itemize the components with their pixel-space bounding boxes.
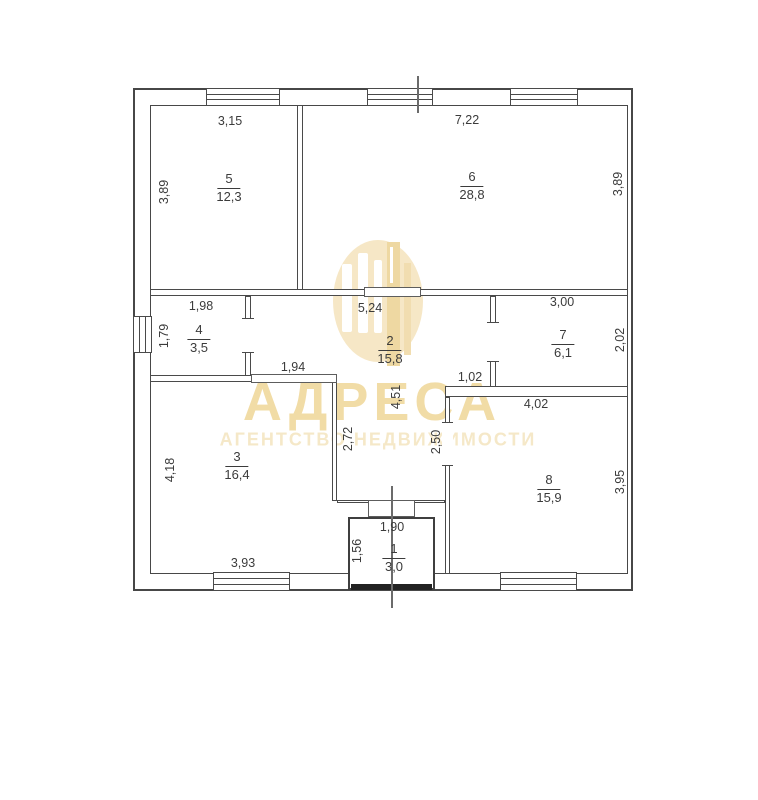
room-number: 3 xyxy=(225,450,248,467)
room-label-3: 3 16,4 xyxy=(224,450,249,483)
room-label-5: 5 12,3 xyxy=(216,172,241,205)
door-opening-room8 xyxy=(442,422,453,466)
room-label-6: 6 28,8 xyxy=(459,170,484,203)
dim-label-room7-top: 3,00 xyxy=(550,295,574,309)
dim-label-room4-left: 1,79 xyxy=(157,324,171,348)
room-label-8: 8 15,9 xyxy=(536,473,561,506)
room-area: 12,3 xyxy=(216,190,241,205)
room-area: 3,0 xyxy=(382,560,405,575)
room-label-4: 4 3,5 xyxy=(187,323,210,356)
dim-label-room1-top: 1,90 xyxy=(380,520,404,534)
room-number: 5 xyxy=(217,172,240,189)
dim-label-room4-top: 1,98 xyxy=(189,299,213,313)
window-room6-top-left xyxy=(367,88,433,106)
door-opening-room7 xyxy=(487,322,499,362)
room-label-2: 2 15,8 xyxy=(377,334,402,367)
room-number: 1 xyxy=(382,542,405,559)
window-room6-top-right xyxy=(510,88,578,106)
dim-label-corridor-left: 2,72 xyxy=(341,427,355,451)
room-label-7: 7 6,1 xyxy=(551,328,574,361)
dim-label-passage-room8: 1,02 xyxy=(458,370,482,384)
room-number: 6 xyxy=(460,170,483,187)
wall-corridor-bottom-right xyxy=(413,500,445,503)
dim-label-room1-left: 1,56 xyxy=(350,539,364,563)
wall-corridor-bottom-left xyxy=(337,500,369,503)
dim-label-room8-right: 3,95 xyxy=(613,470,627,494)
room-number: 8 xyxy=(537,473,560,490)
dim-label-hall-height: 4,51 xyxy=(389,385,403,409)
dim-label-room5-left: 3,89 xyxy=(157,180,171,204)
floor-plan-page: АДРЕСА АГЕНТСТВО НЕДВИЖИМОСТИ 3,15 7,22 … xyxy=(0,0,758,800)
room-area: 15,8 xyxy=(377,352,402,367)
room-area: 15,9 xyxy=(536,491,561,506)
window-room5-top xyxy=(206,88,280,106)
dim-label-room6-top: 7,22 xyxy=(455,113,479,127)
dim-label-room5-top: 3,15 xyxy=(218,114,242,128)
dim-label-room6-right: 3,89 xyxy=(611,172,625,196)
door-opening-hall-room3 xyxy=(251,374,337,383)
dim-label-room3-left: 4,18 xyxy=(163,458,177,482)
dim-label-hall-top: 5,24 xyxy=(358,301,382,315)
dim-label-room3-bottom: 3,93 xyxy=(231,556,255,570)
dim-label-corridor-right: 2,50 xyxy=(429,430,443,454)
wall-corridor-left xyxy=(332,382,337,501)
window-room3-bottom xyxy=(213,572,290,591)
dim-label-room7-right: 2,02 xyxy=(613,328,627,352)
room-area: 3,5 xyxy=(187,341,210,356)
room-area: 16,4 xyxy=(224,468,249,483)
room-number: 7 xyxy=(551,328,574,345)
room-label-1: 1 3,0 xyxy=(382,542,405,575)
window-room8-bottom xyxy=(500,572,577,591)
room-number: 2 xyxy=(378,334,401,351)
dim-label-room8-top: 4,02 xyxy=(524,397,548,411)
room-area: 28,8 xyxy=(459,188,484,203)
window-room4-left xyxy=(133,316,152,353)
wall-room5-room6 xyxy=(297,105,303,296)
wall-room7-room8 xyxy=(445,386,628,397)
dim-label-opening-room3: 1,94 xyxy=(281,360,305,374)
door-opening-room4 xyxy=(242,318,254,353)
room-area: 6,1 xyxy=(551,346,574,361)
door-opening-hall-room6 xyxy=(364,287,421,297)
axis-line-top xyxy=(417,76,419,113)
room-number: 4 xyxy=(187,323,210,340)
